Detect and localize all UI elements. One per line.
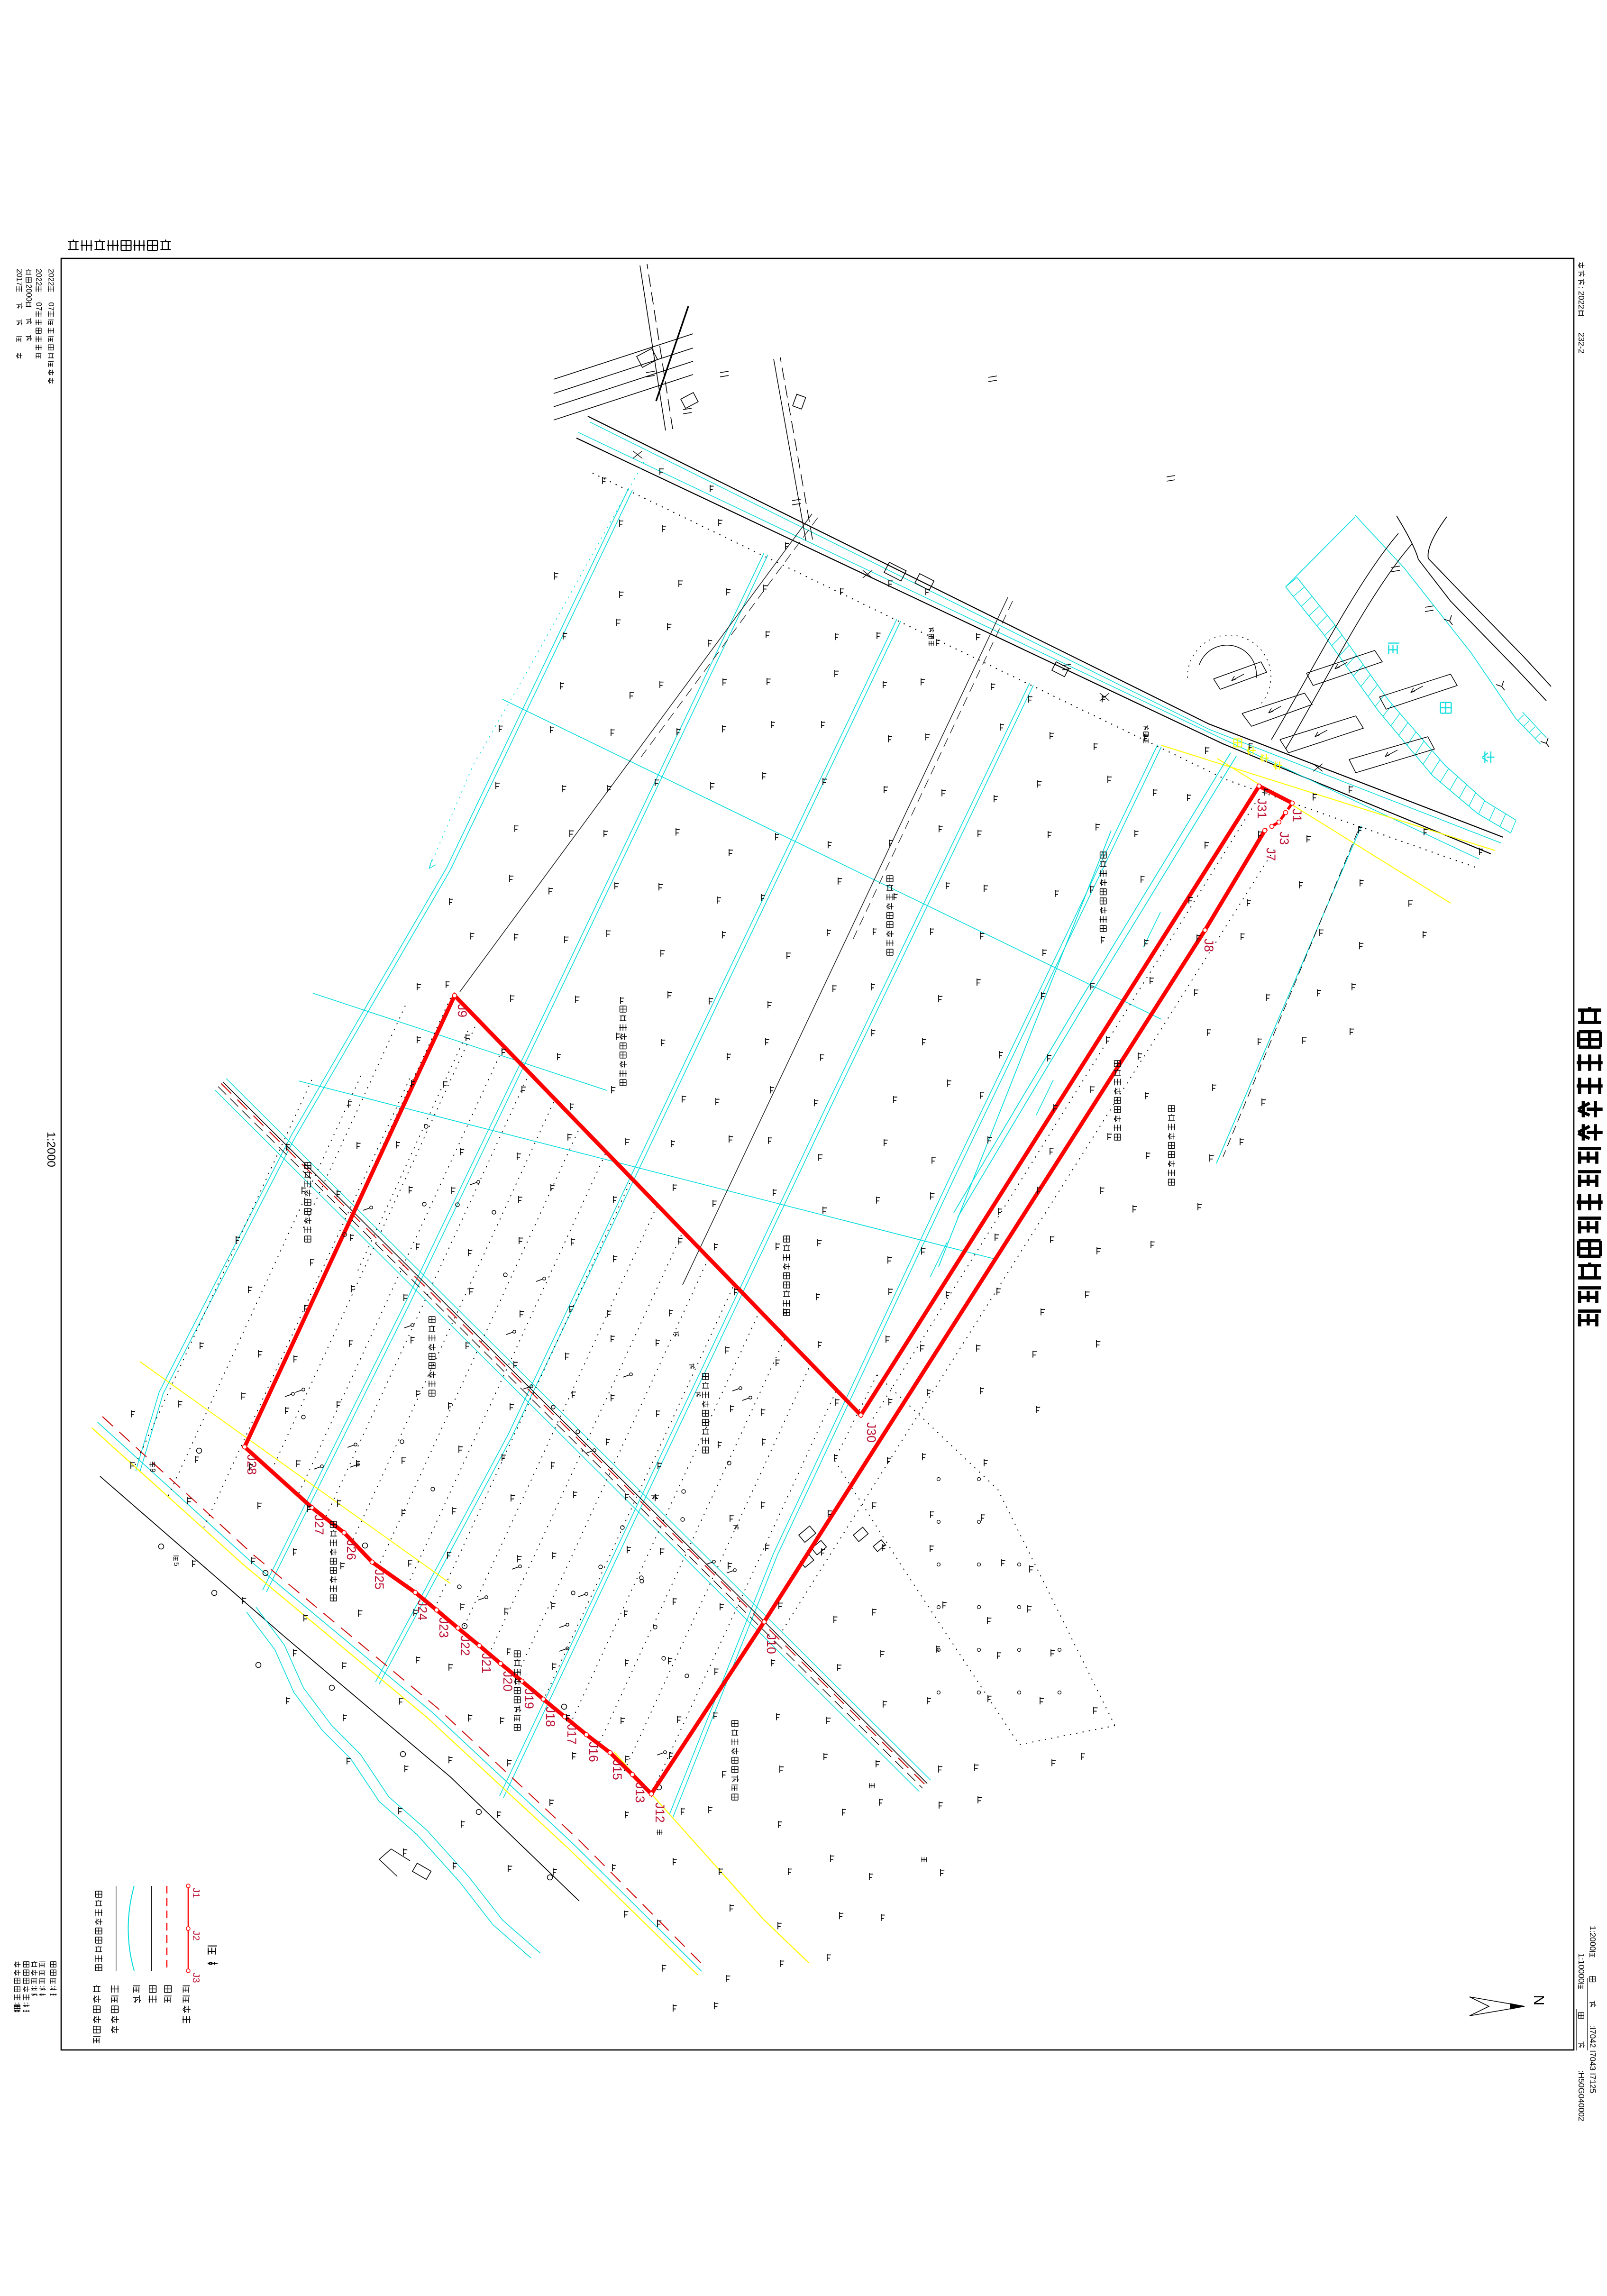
svg-text:J2: J2: [191, 1930, 201, 1941]
svg-text:9: 9: [148, 1468, 156, 1473]
svg-text:J16: J16: [586, 1742, 601, 1762]
svg-text:J3: J3: [191, 1973, 201, 1983]
svg-text:J26: J26: [344, 1540, 358, 1560]
svg-text:07: 07: [47, 302, 55, 311]
svg-text:J17: J17: [565, 1724, 579, 1745]
svg-text:J15: J15: [610, 1760, 624, 1780]
svg-text:J1: J1: [191, 1888, 201, 1898]
svg-text:2017: 2017: [15, 269, 24, 286]
svg-text:J12: J12: [653, 1802, 667, 1823]
svg-text::: :: [13, 2002, 22, 2004]
svg-text:J23: J23: [437, 1618, 451, 1638]
svg-text:J10: J10: [764, 1634, 778, 1654]
svg-text:J3: J3: [1277, 832, 1291, 845]
svg-text:J9: J9: [455, 1004, 469, 1017]
svg-text:J13: J13: [633, 1783, 647, 1803]
svg-text:J7: J7: [1264, 848, 1278, 861]
svg-text::: :: [49, 1985, 58, 1988]
svg-text:232-2: 232-2: [1577, 332, 1586, 353]
svg-text:J22: J22: [458, 1636, 472, 1656]
svg-text:J8: J8: [1202, 939, 1216, 952]
svg-text:J25: J25: [372, 1569, 386, 1590]
svg-text:J19: J19: [522, 1689, 536, 1709]
svg-text::H50G040002: :H50G040002: [1577, 2070, 1586, 2122]
svg-text:07: 07: [35, 302, 43, 311]
svg-text:2000: 2000: [25, 284, 33, 302]
svg-text:J21: J21: [479, 1653, 493, 1674]
svg-text::I7042 I7043 I7125: :I7042 I7043 I7125: [1588, 2025, 1598, 2093]
svg-text:2022: 2022: [35, 269, 43, 286]
svg-text:1:10000: 1:10000: [1577, 1953, 1586, 1983]
svg-text:J27: J27: [312, 1515, 326, 1535]
svg-text:1:2000: 1:2000: [1588, 1926, 1598, 1951]
svg-text:5: 5: [172, 1562, 180, 1566]
svg-text:J18: J18: [543, 1707, 557, 1727]
svg-text:J20: J20: [501, 1671, 515, 1692]
svg-text:1:2000: 1:2000: [45, 1132, 57, 1167]
svg-text:: 2022: : 2022: [1577, 286, 1586, 309]
svg-text:2022: 2022: [47, 269, 55, 286]
svg-text:J31: J31: [1255, 798, 1269, 819]
svg-text::: :: [30, 1985, 39, 1988]
svg-text:J30: J30: [864, 1422, 878, 1443]
svg-text::: :: [22, 2002, 31, 2004]
svg-text:J1: J1: [1290, 809, 1304, 822]
svg-text:N: N: [1531, 1995, 1547, 2005]
